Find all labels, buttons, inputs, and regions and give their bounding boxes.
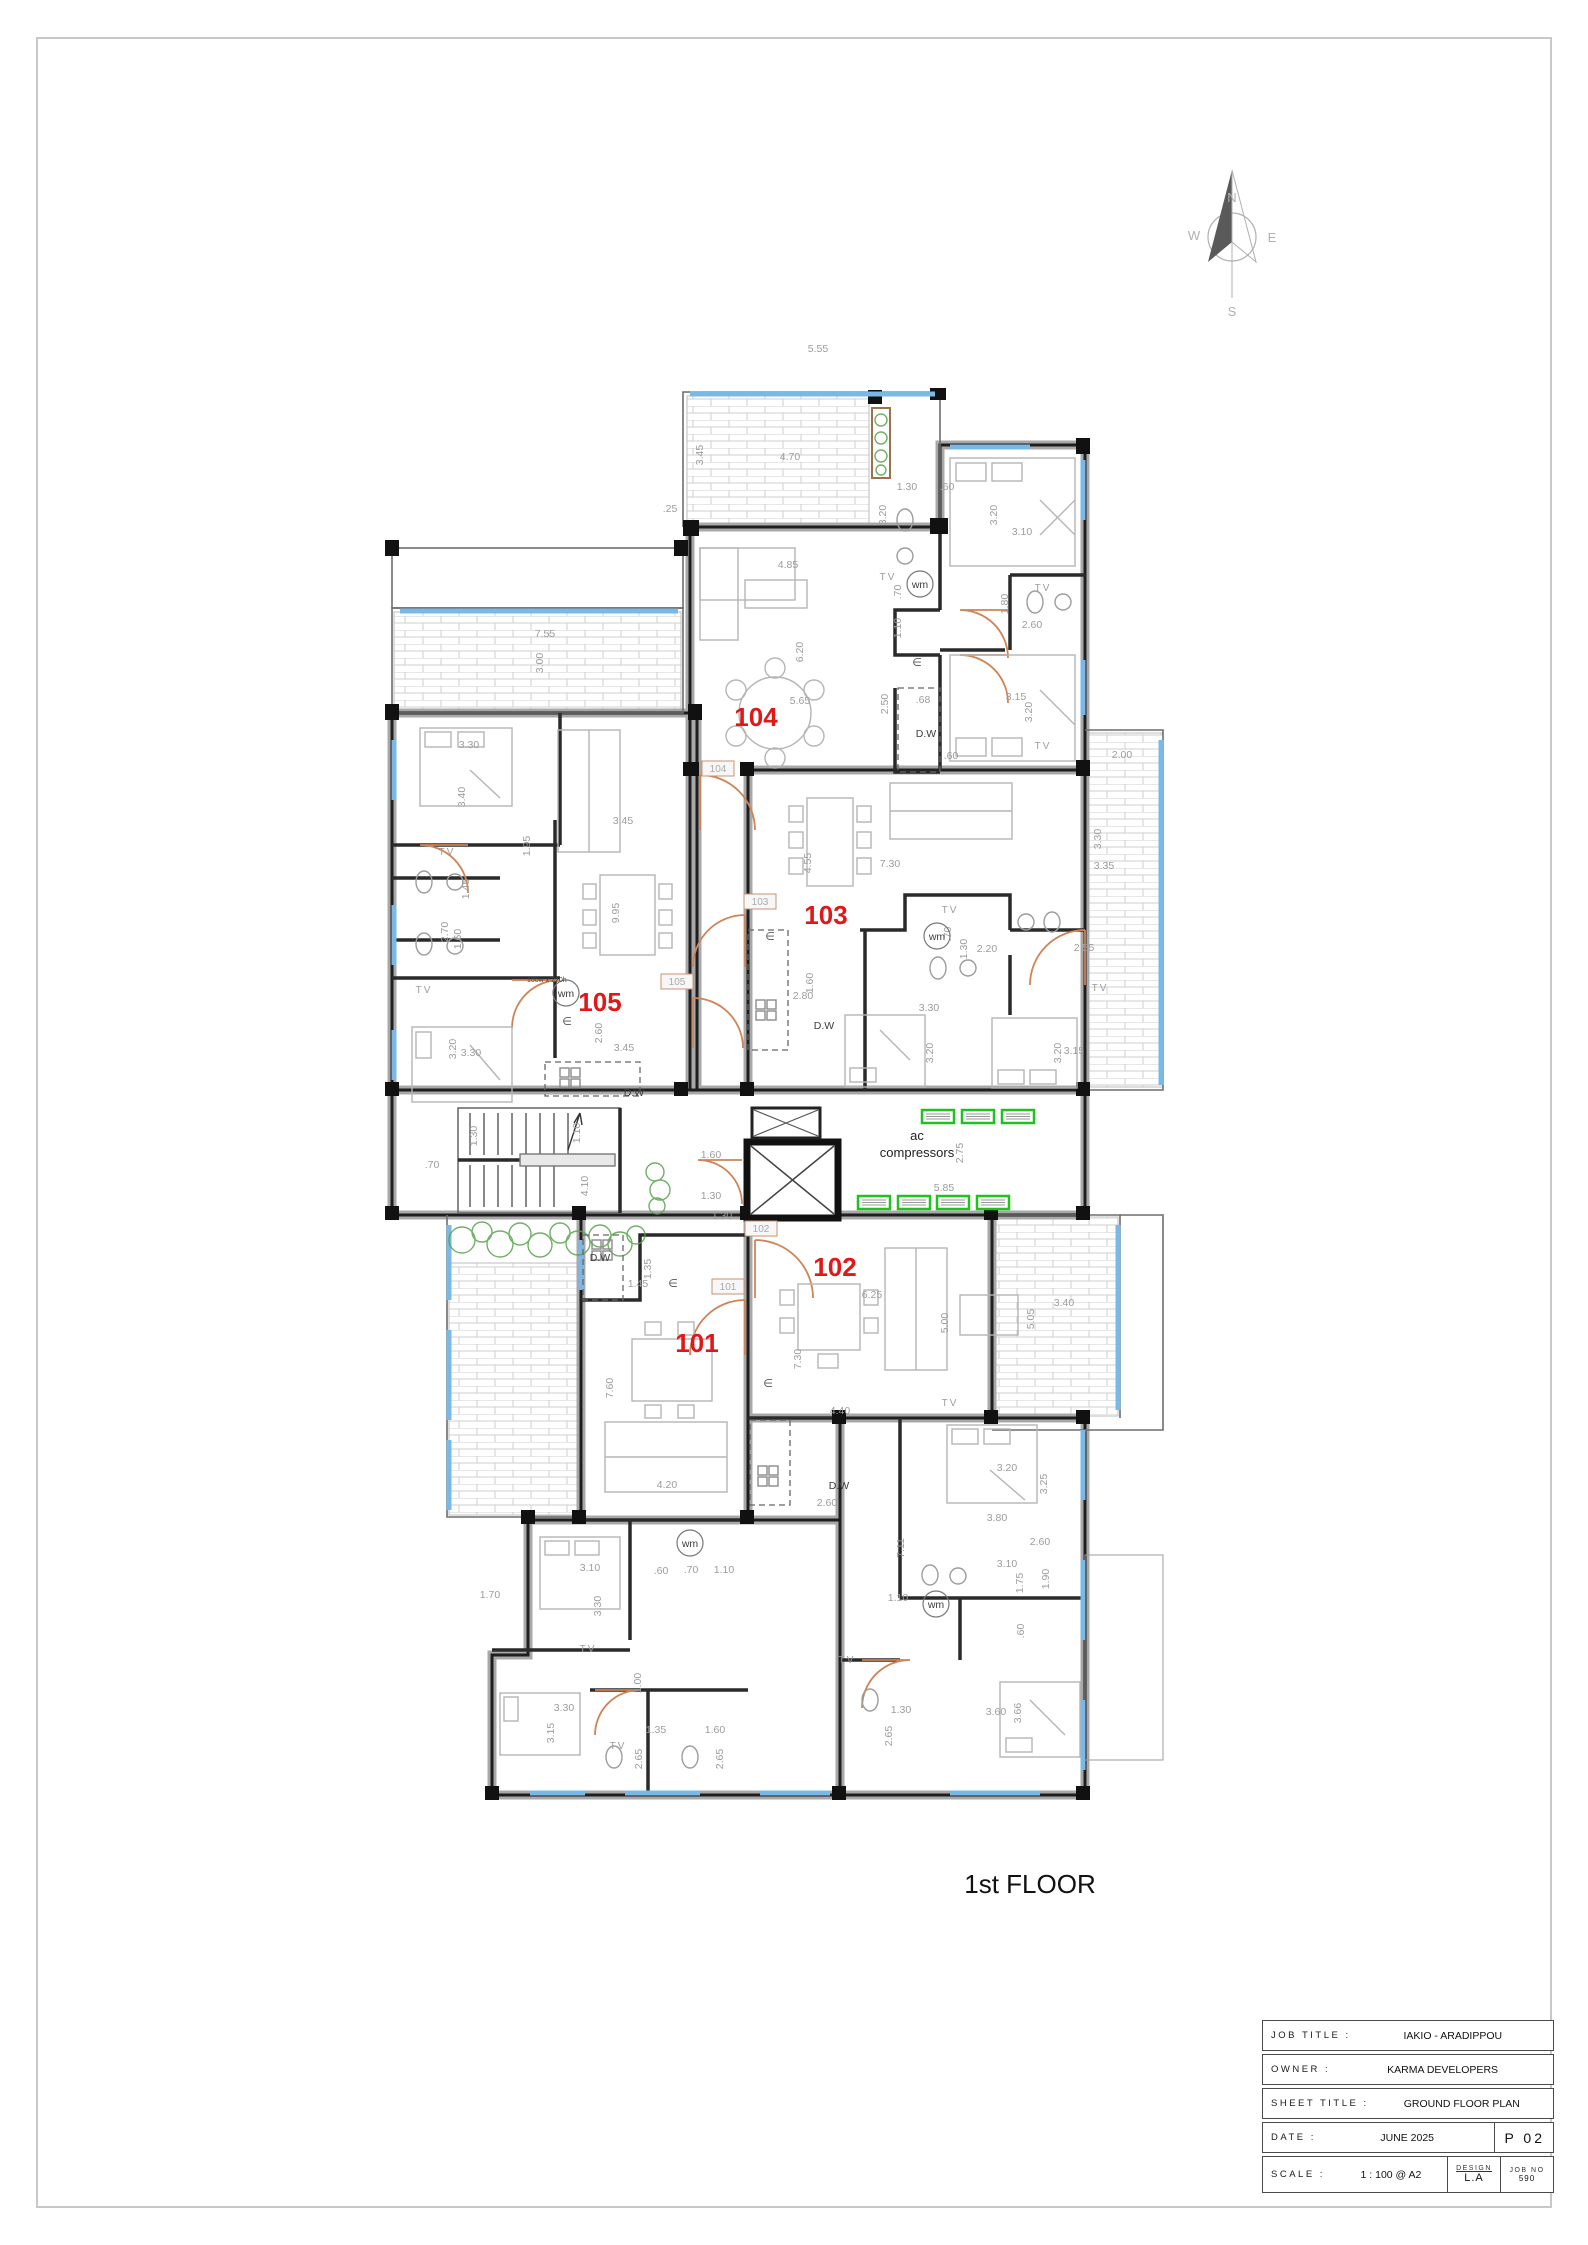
dimension-label: 3.25 bbox=[1038, 1474, 1050, 1495]
tv-label: TV bbox=[839, 1655, 856, 1666]
dimension-label: 3.30 bbox=[461, 1047, 482, 1059]
dimension-label: 1.70 bbox=[480, 1589, 501, 1601]
compass-e: E bbox=[1268, 230, 1277, 245]
dimension-label: .68 bbox=[916, 694, 931, 706]
dimension-label: 3.45 bbox=[694, 445, 706, 466]
title-block: JOB TITLE : IAKIO - ARADIPPOU OWNER : KA… bbox=[1262, 2020, 1554, 2196]
door-tag-label: 102 bbox=[753, 1224, 770, 1235]
dimension-label: 2.65 bbox=[883, 1726, 895, 1747]
dimension-label: 5.85 bbox=[934, 1182, 955, 1194]
dimension-label: .25 bbox=[663, 503, 678, 515]
ac-compressors-label-line2: compressors bbox=[880, 1145, 955, 1160]
dimension-label: 7.30 bbox=[880, 858, 901, 870]
washing-machine-label: wm bbox=[927, 1599, 945, 1611]
dimension-label: .70 bbox=[892, 585, 904, 600]
dimension-label: 7.55 bbox=[535, 628, 556, 640]
dishwasher-label: D.W bbox=[590, 1252, 611, 1264]
title-block-row-date: DATE : JUNE 2025 P 02 bbox=[1262, 2122, 1554, 2153]
dimension-label: .70 bbox=[684, 1564, 699, 1576]
elevator bbox=[747, 1108, 838, 1218]
dimension-label: 2.55 bbox=[1074, 942, 1095, 954]
door-tag-label: 105 bbox=[669, 977, 686, 988]
dimension-label: 3.15 bbox=[1006, 691, 1027, 703]
dimension-label: 3.20 bbox=[997, 1462, 1018, 1474]
door-tag-label: 104 bbox=[710, 764, 727, 775]
dimension-label: 1.35 bbox=[646, 1724, 667, 1736]
dimension-label: 2.00 bbox=[1112, 749, 1133, 761]
tv-label: TV bbox=[416, 985, 433, 996]
dimension-label: 1.30 bbox=[891, 1704, 912, 1716]
dimension-label: 6.20 bbox=[794, 642, 806, 663]
balcony-outlines bbox=[392, 392, 1163, 1760]
sheet-title-label: SHEET TITLE : bbox=[1271, 2098, 1369, 2109]
dimension-label: 4.85 bbox=[778, 559, 799, 571]
dimension-label: 1.60 bbox=[705, 1724, 726, 1736]
dimension-label: 7.30 bbox=[792, 1349, 804, 1370]
dimension-label: .60 bbox=[654, 1565, 669, 1577]
dimension-label: 1.90 bbox=[1040, 1569, 1052, 1590]
ac-compressor-unit bbox=[1002, 1110, 1034, 1123]
tv-label: TV bbox=[942, 905, 959, 916]
dishwasher-label: D.W bbox=[829, 1480, 850, 1492]
dimension-label: 6.25 bbox=[862, 1289, 883, 1301]
electrical-board-symbol: ∈ bbox=[763, 1377, 773, 1390]
tv-label: TV bbox=[439, 847, 456, 858]
dimension-label: 3.00 bbox=[534, 653, 546, 674]
dimension-label: 2.60 bbox=[593, 1023, 605, 1044]
washing-machine-label: wm bbox=[557, 988, 575, 1000]
dimension-label: 1.10 bbox=[892, 618, 904, 639]
dishwasher-label: D.W bbox=[624, 1087, 645, 1099]
owner-value: KARMA DEVELOPERS bbox=[1340, 2064, 1545, 2076]
planting bbox=[449, 408, 890, 1257]
dimension-label: 5.65 bbox=[790, 695, 811, 707]
date-value: JUNE 2025 bbox=[1326, 2132, 1489, 2144]
dimension-label: 5.00 bbox=[939, 1313, 951, 1334]
dimension-label: 2.60 bbox=[1030, 1536, 1051, 1548]
tv-label: TV bbox=[1035, 583, 1052, 594]
dimension-label: 3.45 bbox=[614, 1042, 635, 1054]
dimension-label: 3.60 bbox=[986, 1706, 1007, 1718]
dimension-label: .60 bbox=[944, 750, 959, 762]
dimension-label: 1.00 bbox=[632, 1673, 644, 1694]
electrical-board-symbol: ∈ bbox=[668, 1277, 678, 1290]
compass-needle bbox=[1208, 170, 1232, 262]
tv-label: TV bbox=[942, 1398, 959, 1409]
dimension-label: .60 bbox=[940, 481, 955, 493]
dimension-label: 3.30 bbox=[1092, 829, 1104, 850]
dimension-label: 7.11 bbox=[895, 1538, 907, 1558]
job-title-value: IAKIO - ARADIPPOU bbox=[1361, 2030, 1545, 2042]
dimension-label: 5.55 bbox=[808, 343, 829, 355]
dimension-label: 3.35 bbox=[1094, 860, 1115, 872]
tv-label: TV bbox=[880, 572, 897, 583]
dimension-label: 2.60 bbox=[1022, 619, 1043, 631]
sheet-number: P 02 bbox=[1494, 2123, 1545, 2152]
dimension-label: 3.40 bbox=[456, 787, 468, 808]
dimension-label: 3.40 bbox=[1054, 1297, 1075, 1309]
tv-label: TV bbox=[1035, 741, 1052, 752]
dimension-label: 4.10 bbox=[579, 1176, 591, 1197]
date-label: DATE : bbox=[1271, 2132, 1316, 2143]
dimension-label: 4.40 bbox=[830, 1405, 851, 1417]
dimension-label: 3.15 bbox=[1064, 1045, 1085, 1057]
compass-w: W bbox=[1188, 228, 1201, 243]
dimension-label: 3.20 bbox=[877, 505, 889, 526]
dimension-label: 2.70 bbox=[439, 922, 451, 943]
electrical-board-symbol: ∈ bbox=[912, 656, 922, 669]
dimension-label: 3.20 bbox=[1023, 702, 1035, 723]
dimension-label: 2.60 bbox=[817, 1497, 838, 1509]
ac-compressor-unit bbox=[977, 1196, 1009, 1209]
dimension-label: 1.30 bbox=[958, 939, 970, 960]
dimension-label: 2.65 bbox=[714, 1749, 726, 1770]
dimension-label: 3.30 bbox=[554, 1702, 575, 1714]
dimension-label: 1.60 bbox=[452, 929, 464, 950]
tv-label: TV bbox=[610, 1741, 627, 1752]
scale-label: SCALE : bbox=[1271, 2169, 1325, 2180]
ac-compressors-label-line1: ac bbox=[910, 1128, 924, 1143]
ac-compressor-unit bbox=[962, 1110, 994, 1123]
dimension-label: 2.20 bbox=[977, 943, 998, 955]
dimension-label: .60 bbox=[1015, 1624, 1027, 1639]
dimension-label: 2.75 bbox=[954, 1143, 966, 1164]
washing-machine-label: wm bbox=[928, 931, 946, 943]
dimension-label: 1.75 bbox=[1014, 1573, 1026, 1594]
dimension-label: 3.10 bbox=[580, 1562, 601, 1574]
dimension-label: 1.30 bbox=[468, 1126, 480, 1147]
scale-value: 1 : 100 @ A2 bbox=[1335, 2169, 1447, 2181]
sheet-title-value: GROUND FLOOR PLAN bbox=[1379, 2098, 1545, 2110]
dimension-label: 3.15 bbox=[545, 1723, 557, 1744]
washing-machine-label: wm bbox=[681, 1538, 699, 1550]
design-value: L.A bbox=[1464, 2172, 1484, 2184]
dimension-label: 4.20 bbox=[657, 1479, 678, 1491]
apartment-number: 104 bbox=[734, 702, 778, 732]
design-cell: DESIGN L.A bbox=[1447, 2157, 1500, 2192]
dimension-label: 3.20 bbox=[924, 1043, 936, 1064]
job-title-label: JOB TITLE : bbox=[1271, 2030, 1351, 2041]
door-tag-label: 103 bbox=[752, 897, 769, 908]
compass-n: N bbox=[1227, 190, 1236, 205]
dimension-label: 4.55 bbox=[802, 853, 814, 874]
dimension-label: 1.35 bbox=[642, 1259, 654, 1280]
title-block-row-scale: SCALE : 1 : 100 @ A2 DESIGN L.A JOB NO 5… bbox=[1262, 2156, 1554, 2193]
title-block-row-sheet-title: SHEET TITLE : GROUND FLOOR PLAN bbox=[1262, 2088, 1554, 2119]
title-block-row-owner: OWNER : KARMA DEVELOPERS bbox=[1262, 2054, 1554, 2085]
dimension-label: 1.30 bbox=[712, 1210, 733, 1222]
tv-label: TV bbox=[580, 1644, 597, 1655]
north-compass: N S E W bbox=[1188, 170, 1277, 319]
ac-compressor-unit bbox=[858, 1196, 890, 1209]
door-size-note: 100w x 220h bbox=[527, 977, 567, 984]
dimension-label: 1.30 bbox=[897, 481, 918, 493]
floor-title: 1st FLOOR bbox=[964, 1869, 1095, 1899]
title-block-row-job-title: JOB TITLE : IAKIO - ARADIPPOU bbox=[1262, 2020, 1554, 2051]
ac-compressor-unit bbox=[937, 1196, 969, 1209]
job-no-value: 590 bbox=[1519, 2174, 1535, 2183]
dimension-label: 3.30 bbox=[459, 739, 480, 751]
job-no-cell: JOB NO 590 bbox=[1500, 2157, 1553, 2192]
job-no-label: JOB NO bbox=[1509, 2167, 1544, 2174]
owner-label: OWNER : bbox=[1271, 2064, 1330, 2075]
door-tag-label: 101 bbox=[720, 1282, 737, 1293]
electrical-board-symbol: ∈ bbox=[765, 930, 775, 943]
dimension-label: 3.10 bbox=[997, 1558, 1018, 1570]
washing-machine-label: wm bbox=[911, 579, 929, 591]
dimension-label: 2.50 bbox=[879, 694, 891, 715]
dimension-label: 5.05 bbox=[1025, 1309, 1037, 1330]
dimension-label: 1.10 bbox=[571, 1123, 583, 1144]
ac-compressor-unit bbox=[898, 1196, 930, 1209]
drawing-sheet: { "page": { "floor_label": "1st FLOOR" }… bbox=[0, 0, 1588, 2245]
design-label: DESIGN bbox=[1456, 2165, 1492, 2172]
compass-s: S bbox=[1228, 304, 1237, 319]
dimension-label: 1.30 bbox=[701, 1190, 722, 1202]
dimension-label: .70 bbox=[425, 1159, 440, 1171]
dimension-label: 3.66 bbox=[1012, 1703, 1024, 1724]
apartment-number: 101 bbox=[675, 1328, 718, 1358]
dimension-label: 1.10 bbox=[888, 1592, 909, 1604]
dimension-label: 7.60 bbox=[604, 1378, 616, 1399]
dimension-label: 4.70 bbox=[780, 451, 801, 463]
apartment-number: 102 bbox=[813, 1252, 856, 1282]
dishwasher-label: D.W bbox=[916, 728, 937, 740]
floor-plan-canvas: N S E W 5.553.454.70.254.856.205.651.30.… bbox=[0, 0, 1588, 2245]
dimension-label: 3.30 bbox=[919, 1002, 940, 1014]
dimension-label: 3.20 bbox=[1052, 1043, 1064, 1064]
dimension-label: 1.80 bbox=[999, 594, 1011, 615]
apartment-number: 103 bbox=[804, 900, 847, 930]
dishwasher-label: D.W bbox=[814, 1020, 835, 1032]
dimension-label: 3.10 bbox=[1012, 526, 1033, 538]
dimension-label: 1.45 bbox=[460, 879, 472, 900]
tv-label: TV bbox=[1092, 983, 1109, 994]
dimension-label: 3.20 bbox=[447, 1039, 459, 1060]
dimension-label: 3.45 bbox=[613, 815, 634, 827]
dimension-label: 3.20 bbox=[988, 505, 1000, 526]
dimension-label: 1.60 bbox=[701, 1149, 722, 1161]
apartment-number: 105 bbox=[578, 987, 621, 1017]
dimension-label: 1.60 bbox=[804, 973, 816, 994]
dimension-label: 9.95 bbox=[610, 903, 622, 924]
electrical-board-symbol: ∈ bbox=[562, 1015, 572, 1028]
dimension-label: 3.80 bbox=[987, 1512, 1008, 1524]
ac-compressor-unit bbox=[922, 1110, 954, 1123]
dimension-label: 1.10 bbox=[714, 1564, 735, 1576]
dimension-label: 1.95 bbox=[521, 836, 533, 857]
dimension-label: 2.65 bbox=[633, 1749, 645, 1770]
dimension-label: 3.30 bbox=[592, 1596, 604, 1617]
